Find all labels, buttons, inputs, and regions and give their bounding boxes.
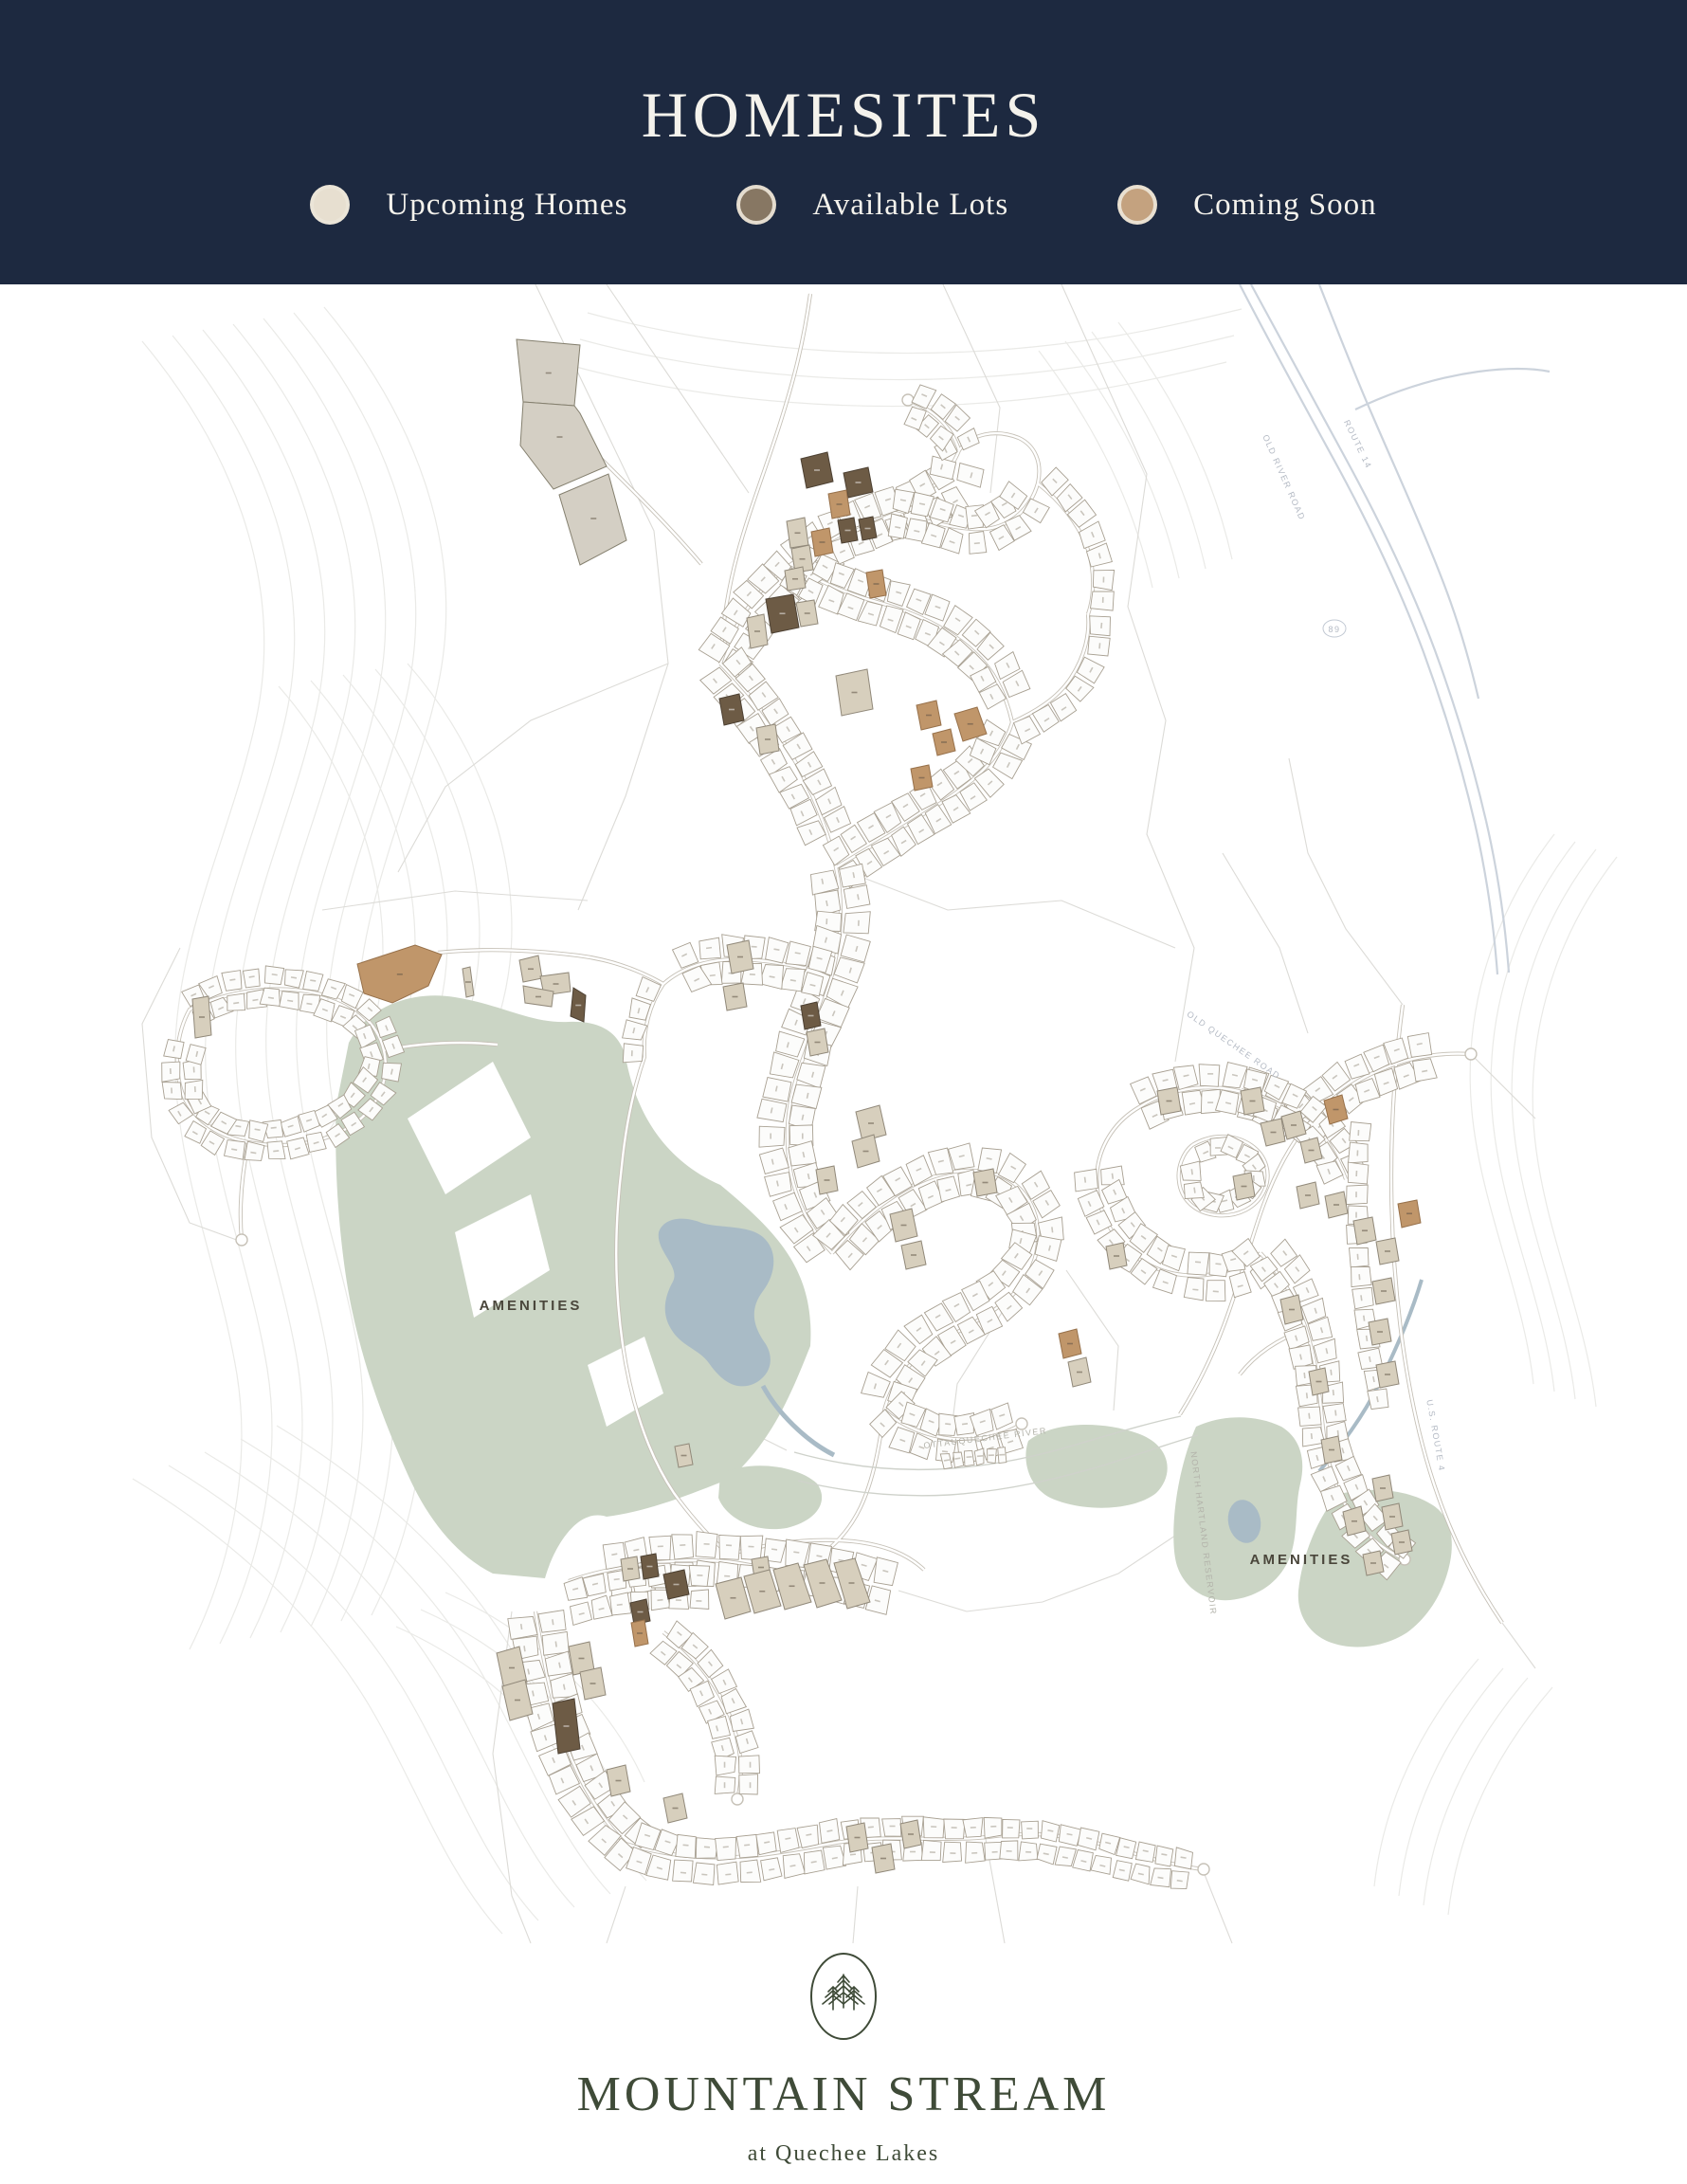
lot — [185, 1121, 207, 1144]
lot — [739, 1774, 758, 1794]
lot — [870, 1410, 897, 1438]
legend: Upcoming Homes Available Lots Coming Soo… — [0, 185, 1687, 225]
lot — [1413, 1059, 1438, 1082]
lot — [1199, 1065, 1220, 1087]
lot — [1155, 1846, 1173, 1866]
lot — [690, 1590, 709, 1610]
lot — [719, 1535, 741, 1559]
lot — [1188, 1252, 1209, 1275]
lot — [1348, 1162, 1369, 1184]
lot — [957, 464, 984, 488]
pine-trees-icon — [808, 1951, 879, 2042]
lot — [1022, 1821, 1039, 1839]
large-parcel — [559, 474, 626, 565]
lot — [715, 1756, 735, 1775]
lot — [1075, 1169, 1098, 1192]
lot — [185, 1080, 203, 1099]
map-svg: AMENITIES AMENITIES OTTAUQUECHEE RIVER N… — [0, 0, 1687, 2184]
lot — [797, 1825, 819, 1847]
lot — [1229, 1272, 1251, 1298]
lot — [267, 1141, 285, 1159]
lot — [777, 1829, 799, 1853]
legend-label-available: Available Lots — [812, 188, 1008, 223]
lot — [739, 1756, 760, 1774]
amenities-label-west: AMENITIES — [480, 1298, 583, 1314]
lot — [717, 1862, 738, 1884]
lot — [1019, 1842, 1038, 1861]
lot — [1350, 1248, 1370, 1267]
lot — [1135, 1842, 1155, 1862]
lot — [673, 1860, 694, 1882]
large-parcel — [520, 402, 607, 489]
page-title: HOMESITES — [0, 0, 1687, 153]
lot — [672, 1535, 694, 1559]
lot — [906, 1156, 932, 1186]
lot — [888, 514, 907, 538]
lot — [1116, 1838, 1136, 1859]
brand-wordmark: MOUNTAIN STREAM — [577, 2066, 1111, 2122]
lot — [965, 1450, 975, 1465]
lot — [843, 912, 870, 934]
lot — [676, 1834, 697, 1858]
lot — [285, 970, 304, 988]
old-river-road-label: OLD RIVER ROAD — [1261, 433, 1307, 522]
legend-dot-upcoming-icon — [310, 185, 350, 225]
lot — [756, 1832, 776, 1855]
lot — [943, 1842, 962, 1862]
lot — [841, 935, 870, 962]
lot — [759, 1148, 789, 1174]
lot — [1352, 1287, 1374, 1309]
header: HOMESITES Upcoming Homes Available Lots … — [0, 0, 1687, 284]
lot — [1407, 1033, 1431, 1058]
lot — [1003, 1819, 1020, 1838]
lot — [716, 1837, 736, 1860]
lot — [791, 1084, 822, 1109]
lot — [1180, 1161, 1201, 1180]
lot — [249, 1120, 268, 1142]
legend-label-upcoming: Upcoming Homes — [386, 188, 627, 223]
lot — [1350, 1122, 1371, 1141]
lot — [1088, 636, 1111, 656]
lot — [882, 1819, 901, 1837]
lot — [1323, 1404, 1346, 1423]
lot — [1090, 616, 1111, 636]
lot — [921, 1840, 941, 1860]
lot — [1173, 1065, 1198, 1090]
lot — [1091, 591, 1115, 610]
lot — [937, 1176, 960, 1202]
lot — [321, 979, 345, 999]
lot — [1170, 1871, 1188, 1889]
lot — [759, 1126, 785, 1147]
legend-dot-available-icon — [736, 185, 776, 225]
lot — [591, 1595, 612, 1619]
lot — [1055, 1847, 1076, 1866]
lot — [1351, 1267, 1372, 1287]
lot — [186, 1045, 206, 1065]
lot — [1035, 1236, 1061, 1262]
lot — [984, 1817, 1002, 1838]
amenities-label-east: AMENITIES — [1250, 1552, 1353, 1568]
lot — [797, 1063, 825, 1088]
brand-tagline: at Quechee Lakes — [748, 2141, 940, 2167]
legend-label-coming-soon: Coming Soon — [1193, 188, 1376, 223]
lot — [244, 969, 261, 988]
lot — [740, 1860, 761, 1883]
legend-item-available: Available Lots — [736, 185, 1008, 225]
lot — [944, 1819, 965, 1839]
lot — [887, 581, 910, 607]
lot — [508, 1616, 537, 1639]
lot — [1347, 1185, 1369, 1205]
lot — [693, 1863, 715, 1885]
lot — [843, 885, 870, 909]
lot — [953, 1452, 964, 1467]
lot — [623, 1044, 643, 1063]
lot — [991, 1403, 1013, 1429]
footer: MOUNTAIN STREAM at Quechee Lakes — [0, 1951, 1687, 2167]
legend-item-coming-soon: Coming Soon — [1117, 185, 1376, 225]
lot — [1314, 1338, 1336, 1363]
lot — [1206, 1281, 1225, 1301]
lot — [227, 993, 245, 1010]
legend-dot-coming-soon-icon — [1117, 185, 1157, 225]
lot — [740, 1536, 763, 1560]
lot — [1345, 1054, 1370, 1079]
legend-item-upcoming: Upcoming Homes — [310, 185, 627, 225]
lot — [696, 1838, 717, 1859]
homesites-flyer: { "header": { "title": "HOMESITES", "leg… — [0, 0, 1687, 2184]
interstate-label: 89 — [1328, 625, 1340, 634]
lot — [736, 1834, 758, 1858]
lot — [776, 1031, 805, 1057]
lot — [893, 489, 914, 513]
